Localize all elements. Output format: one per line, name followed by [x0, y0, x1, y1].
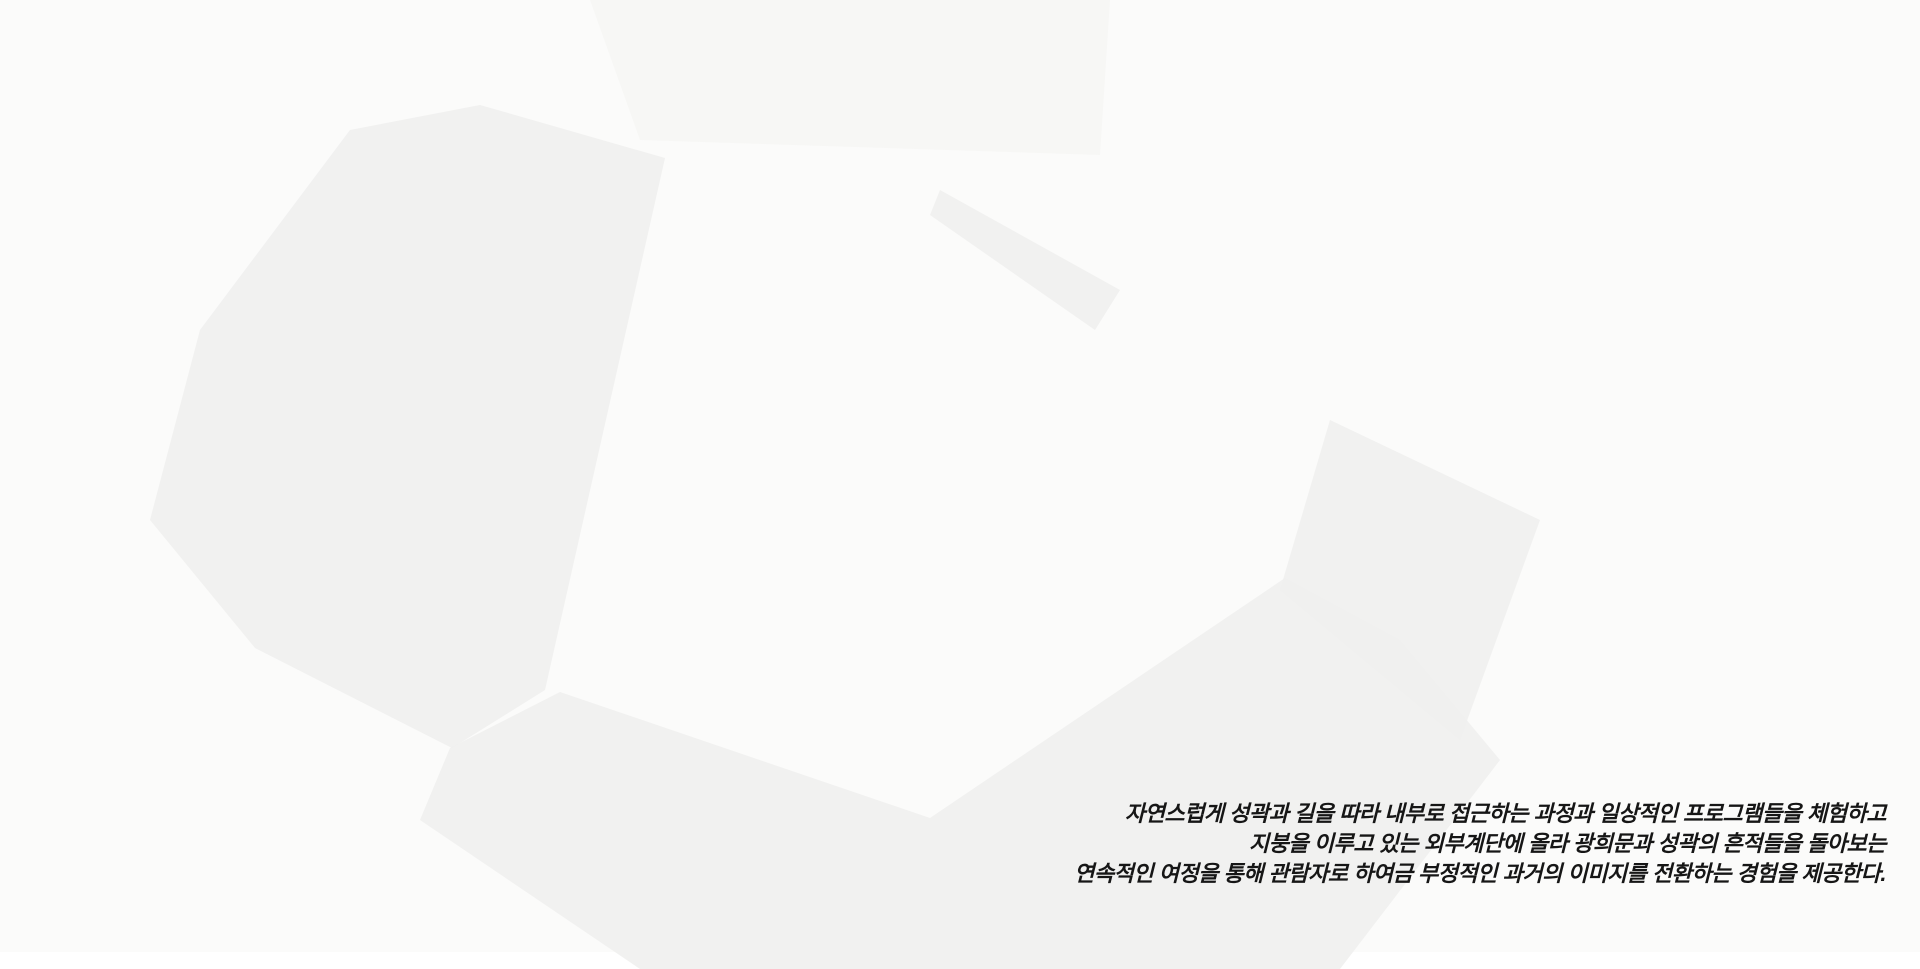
caption-text-block: 자연스럽게 성곽과 길을 따라 내부로 접근하는 과정과 일상적인 프로그램들을…	[1074, 799, 1886, 889]
terrace-ground	[590, 0, 1110, 155]
caption-line-3: 연속적인 여정을 통해 관람자로 하여금 부정적인 과거의 이미지를 전환하는 …	[1074, 859, 1886, 889]
caption-line-1: 자연스럽게 성곽과 길을 따라 내부로 접근하는 과정과 일상적인 프로그램들을…	[1074, 799, 1886, 829]
terraced-slope	[590, 0, 1110, 155]
architectural-axonometric-rendering: 자연스럽게 성곽과 길을 따라 내부로 접근하는 과정과 일상적인 프로그램들을…	[0, 0, 1920, 969]
caption-line-2: 지붕을 이루고 있는 외부계단에 올라 광희문과 성곽의 흔적들을 돌아보는	[1074, 829, 1886, 859]
